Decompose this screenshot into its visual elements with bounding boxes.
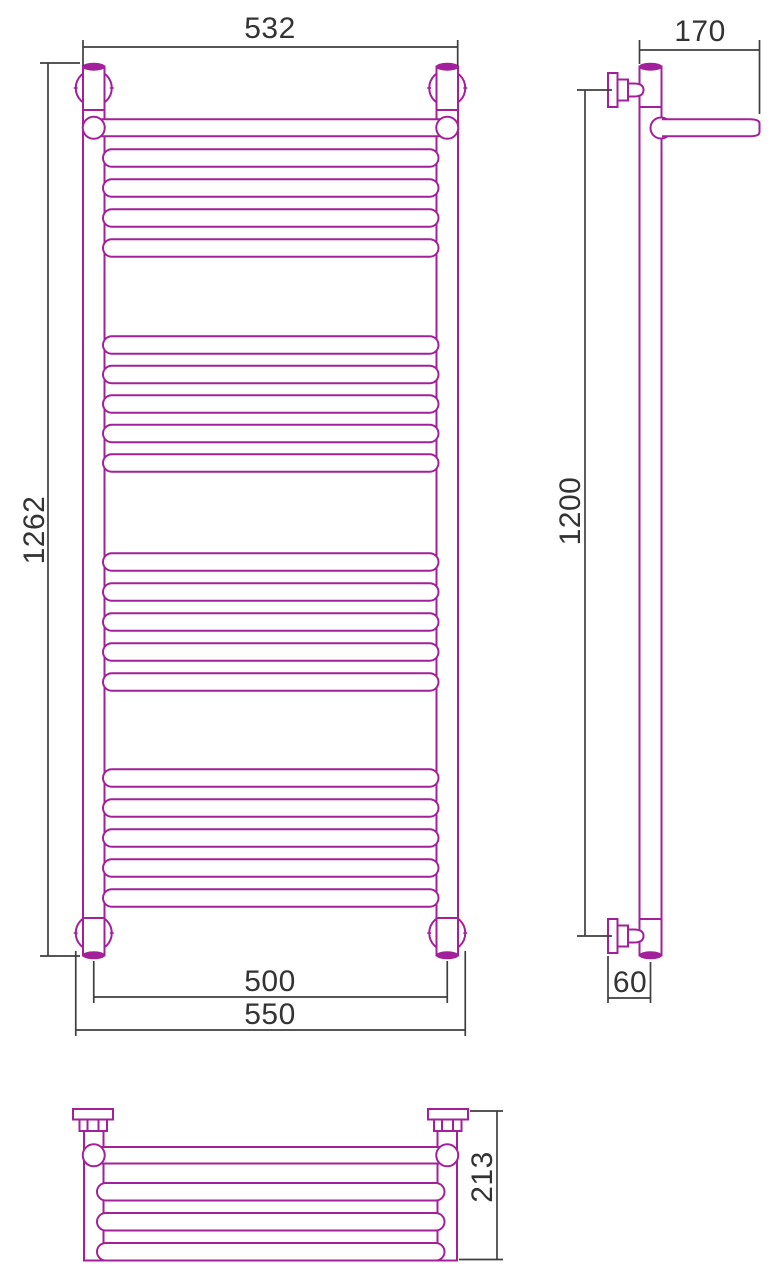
dim-label-550: 550 (244, 998, 296, 1031)
rung (103, 149, 439, 167)
dim-label-170: 170 (674, 15, 726, 48)
ball-joint (436, 1144, 458, 1166)
shelf-rail-body (98, 120, 443, 136)
shelf-bar (97, 1213, 445, 1231)
top-view: 213 (73, 1109, 503, 1261)
left-riser-tube (83, 67, 105, 956)
rung (103, 859, 439, 877)
riser-tube-profile (640, 67, 662, 956)
rung (103, 239, 439, 257)
ball-joint (83, 1144, 105, 1166)
shelf-rail-profile (662, 119, 760, 136)
tube-cap (437, 952, 459, 959)
wall-flange (428, 1109, 468, 1120)
rung (103, 643, 439, 661)
front-view: 532 1262 500 550 (18, 12, 467, 1036)
tube-cap (83, 63, 105, 70)
rung (103, 829, 439, 847)
rung (103, 673, 439, 691)
hex-nut (80, 1120, 108, 1132)
towel-rail-technical-drawing: 532 1262 500 550 170 1200 6 (0, 0, 781, 1280)
rung (103, 799, 439, 817)
rung (103, 366, 439, 384)
rung (103, 336, 439, 354)
rung (103, 209, 439, 227)
valve-nut (618, 926, 629, 947)
hex-nut-facets (88, 1120, 454, 1132)
valve-stem (628, 930, 644, 943)
shelf-rail-body (98, 1147, 443, 1163)
tube-cap (437, 63, 459, 70)
riser-joint-lines (83, 110, 458, 918)
side-view: 170 1200 60 (554, 15, 760, 1003)
valve-stem (628, 84, 644, 97)
shelf-bar-group (97, 1183, 445, 1261)
rung (103, 553, 439, 571)
right-riser-tube (437, 67, 459, 956)
rung (103, 613, 439, 631)
rung-group (103, 149, 439, 907)
rung (103, 769, 439, 787)
dim-label-532: 532 (244, 12, 296, 45)
rung (103, 425, 439, 443)
rung (103, 395, 439, 413)
drawing-canvas: 532 1262 500 550 170 1200 6 (0, 0, 781, 1280)
hex-nut (434, 1120, 462, 1132)
shelf-bar (97, 1243, 445, 1261)
ball-joint (436, 117, 458, 139)
dim-label-213: 213 (466, 1151, 499, 1203)
rung (103, 454, 439, 472)
rung (103, 583, 439, 601)
dim-label-1200: 1200 (554, 477, 587, 546)
shelf-bar (97, 1183, 445, 1201)
dim-label-60: 60 (613, 966, 647, 999)
tube-cap (640, 63, 662, 70)
valve-nut (618, 80, 629, 101)
dim-label-500: 500 (244, 965, 296, 998)
ball-joint (83, 117, 105, 139)
tube-cap (640, 952, 662, 959)
rung (103, 179, 439, 197)
wall-flange (73, 1109, 113, 1120)
dim-label-1262: 1262 (18, 496, 51, 565)
rung (103, 889, 439, 907)
tube-cap (83, 952, 105, 959)
